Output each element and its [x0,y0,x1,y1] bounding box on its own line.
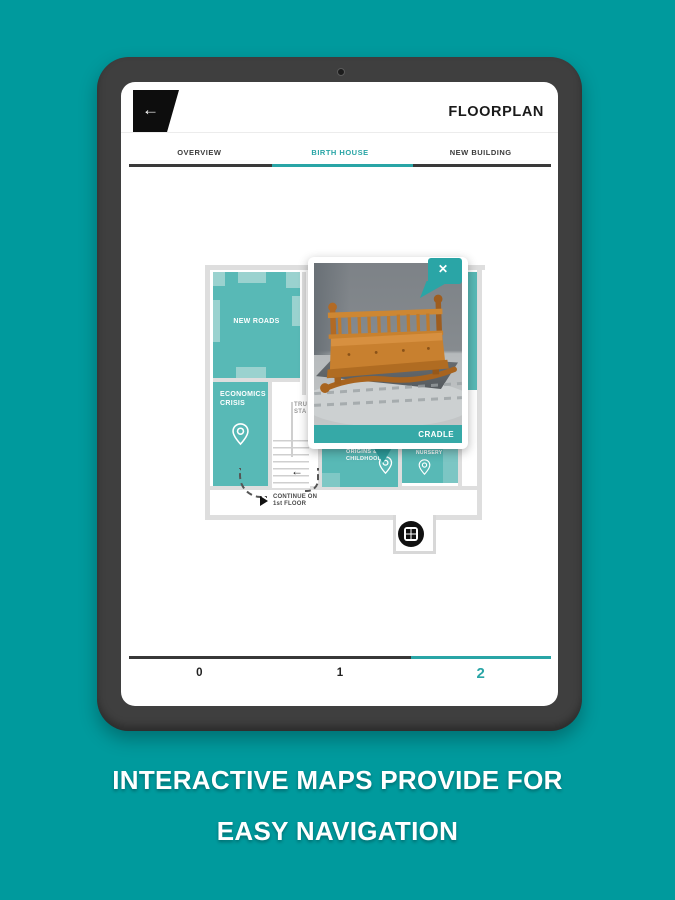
header-divider [121,132,558,133]
room-patch [213,272,225,286]
page-1[interactable]: 1 [270,667,411,679]
continue-play-icon [260,496,268,506]
room-new-roads[interactable]: NEW ROADS [213,272,300,378]
wall-nursery-right [458,447,462,487]
nursery-pin[interactable] [417,458,432,476]
page-indicator: 0 1 2 [129,660,551,686]
room-patch [238,272,266,283]
back-button[interactable]: ← [133,90,179,132]
pager-line-inactive [129,656,411,659]
economics-pin[interactable] [230,422,251,446]
tab-bar: OVERVIEW BIRTH HOUSE NEW BUILDING [129,144,551,162]
room-nursery[interactable]: NURSERY [402,447,458,483]
continue-note: CONTINUE ON 1st FLOOR [273,494,317,508]
room-label-crisis: CRISIS [220,400,245,407]
tab-new-building[interactable]: NEW BUILDING [410,144,551,162]
cradle-illustration [314,293,462,404]
stairs-rail [291,402,293,457]
route-dash-left [239,468,267,498]
cradle-photo [314,263,462,425]
front-camera [337,68,345,76]
tab-underline-right [413,164,551,167]
room-patch [286,272,300,288]
close-icon[interactable]: ✕ [438,262,448,276]
pager-line-active [411,656,551,659]
room-right-sliver [468,272,477,390]
caption-line-1: INTERACTIVE MAPS PROVIDE FOR [0,765,675,796]
tab-underline-active [272,164,413,167]
stairs-label: TRU STA [294,402,307,416]
page-2[interactable]: 2 [410,665,551,682]
tab-underline-left [129,164,272,167]
popup-title-bar: CRADLE [314,425,462,443]
wall-bottom-right [430,515,482,520]
app-screen: ← FLOORPLAN OVERVIEW BIRTH HOUSE NEW BUI… [121,82,558,706]
cradle-popup: CRADLE ✕ [308,257,468,449]
room-label-new-roads: NEW ROADS [213,318,300,325]
room-patch [236,367,266,378]
tab-overview[interactable]: OVERVIEW [129,144,270,162]
page-0[interactable]: 0 [129,667,270,679]
wall-left [205,265,210,520]
tab-birth-house[interactable]: BIRTH HOUSE [270,144,411,162]
elevator-marker[interactable] [398,521,424,552]
room-label-nursery: NURSERY [416,450,442,456]
room-label-economics: ECONOMICS [220,391,266,398]
room-patch [322,473,340,487]
back-arrow-icon: ← [142,100,159,120]
wall-bottom-left [205,515,393,520]
page-title: FLOORPLAN [448,104,544,120]
caption-line-2: EASY NAVIGATION [0,816,675,847]
popup-title: CRADLE [418,430,462,439]
room-patch [443,447,458,483]
route-arrow-left-icon: ← [291,464,303,478]
wall-right [477,265,482,520]
